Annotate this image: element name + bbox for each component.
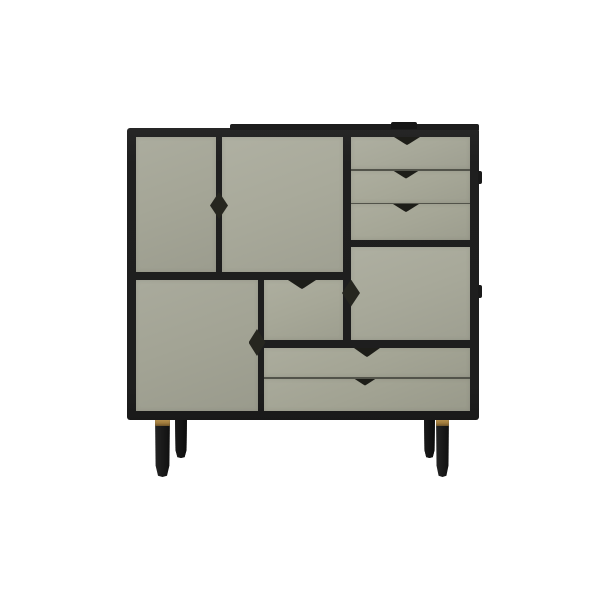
door-right bbox=[351, 247, 470, 340]
leg-front-left bbox=[155, 414, 170, 477]
cabinet-top-hinge bbox=[391, 122, 417, 129]
door-bottom-left bbox=[136, 280, 258, 411]
door-top-middle bbox=[222, 137, 343, 272]
leg-rear-left bbox=[175, 414, 187, 458]
product-image bbox=[0, 0, 610, 610]
cabinet-frame bbox=[127, 128, 479, 420]
door-middle bbox=[264, 280, 343, 340]
drawer-seam bbox=[351, 169, 470, 171]
hinge-right-top bbox=[478, 171, 482, 184]
door-top-left bbox=[136, 137, 216, 272]
hinge-right-bottom bbox=[478, 285, 482, 298]
leg-front-right bbox=[436, 414, 449, 477]
leg-rear-right bbox=[424, 414, 435, 458]
drawer-right-3 bbox=[351, 204, 470, 240]
drawer-seam bbox=[264, 377, 470, 379]
cabinet-top-edge bbox=[230, 124, 479, 130]
